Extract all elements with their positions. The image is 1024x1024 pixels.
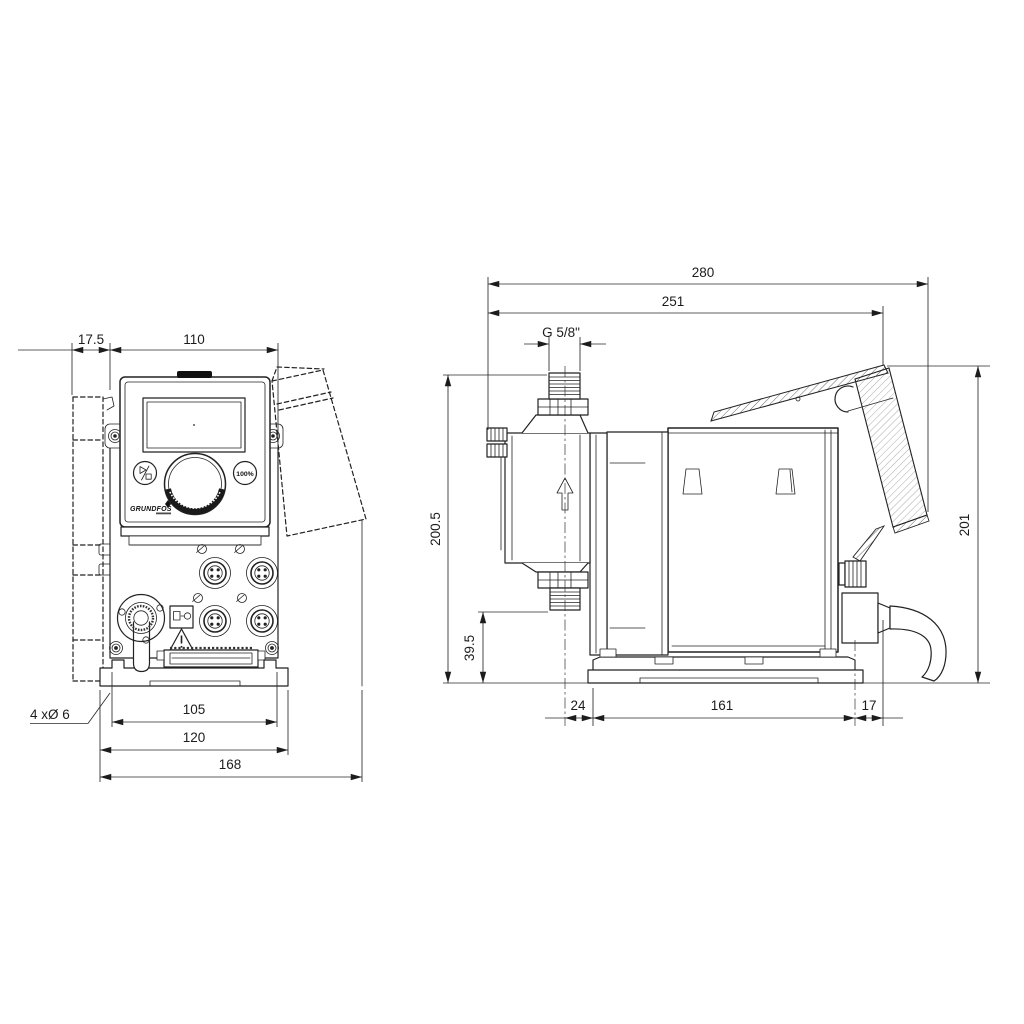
warning-label: [170, 606, 193, 650]
control-panel: 100% GRUNDFOS: [120, 371, 270, 545]
front-flange: [607, 432, 668, 655]
dim-slot-spacing-label: 105: [183, 702, 206, 717]
pump-dimensional-drawing: 100% GRUNDFOS: [0, 0, 1024, 1024]
bracket-hook: [835, 386, 853, 412]
mounting-holes-label: 4 xØ 6: [30, 707, 70, 722]
deaeration-knob[interactable]: [487, 428, 507, 457]
dim-bracket-offset-label: 17.5: [78, 332, 104, 347]
dim-head-overhang-label: 24: [570, 698, 586, 713]
dim-overall-height-label: 200.5: [428, 512, 443, 546]
dim-base-length-label: 161: [711, 698, 734, 713]
power-cable-side: [842, 593, 946, 681]
dim-connection-thread-label: G 5/8": [542, 325, 580, 340]
dim-overall-width-label: 168: [219, 757, 242, 772]
drawing-page: 100% GRUNDFOS: [0, 0, 1024, 1024]
side-view: [443, 365, 990, 726]
dosing-head: [487, 366, 590, 726]
rear-cable-gland: [839, 561, 866, 587]
wall-plate-dashed: [73, 397, 103, 681]
dim-rear-overhang-label: 17: [861, 698, 876, 713]
dim-overall-depth-label: 280: [692, 265, 715, 280]
capacity-button-label: 100%: [236, 471, 253, 478]
dim-body-width-label: 110: [183, 332, 205, 347]
pump-body-side: [590, 428, 838, 655]
wall-bracket-dashed: [272, 367, 366, 536]
panel-flange: [121, 527, 269, 536]
discharge-valve: [522, 373, 588, 433]
suction-valve: [522, 563, 588, 610]
panel-top-tab: [177, 371, 212, 378]
head-adapter: [590, 433, 607, 655]
dim-bracket-height-label: 201: [957, 514, 972, 537]
dim-valve-clearance-label: 39.5: [462, 635, 477, 661]
front-view: 100% GRUNDFOS: [73, 367, 366, 686]
dim-plate-width-label: 120: [183, 730, 206, 745]
clip-front: [683, 469, 702, 494]
dim-depth-to-bracket-label: 251: [662, 294, 685, 309]
mounting-rail: [157, 648, 265, 667]
svg-text:GRUNDFOS: GRUNDFOS: [130, 506, 172, 513]
strain-relief: [878, 603, 890, 633]
